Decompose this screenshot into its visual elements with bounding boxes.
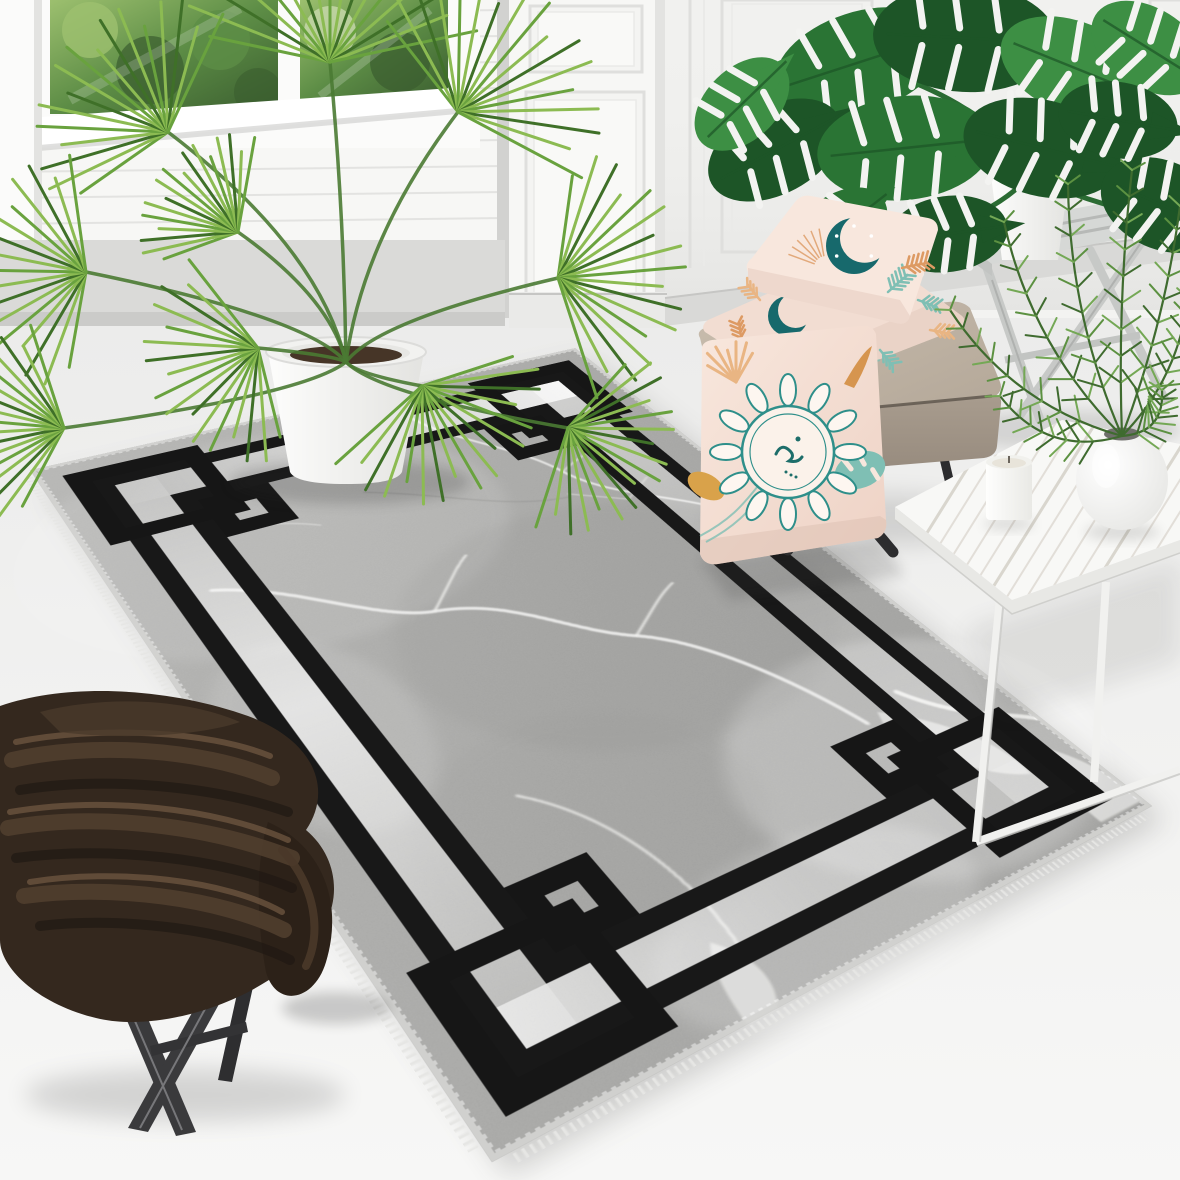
room-scene bbox=[0, 0, 1180, 1180]
wall-pillar bbox=[497, 0, 667, 338]
window bbox=[28, 0, 480, 152]
